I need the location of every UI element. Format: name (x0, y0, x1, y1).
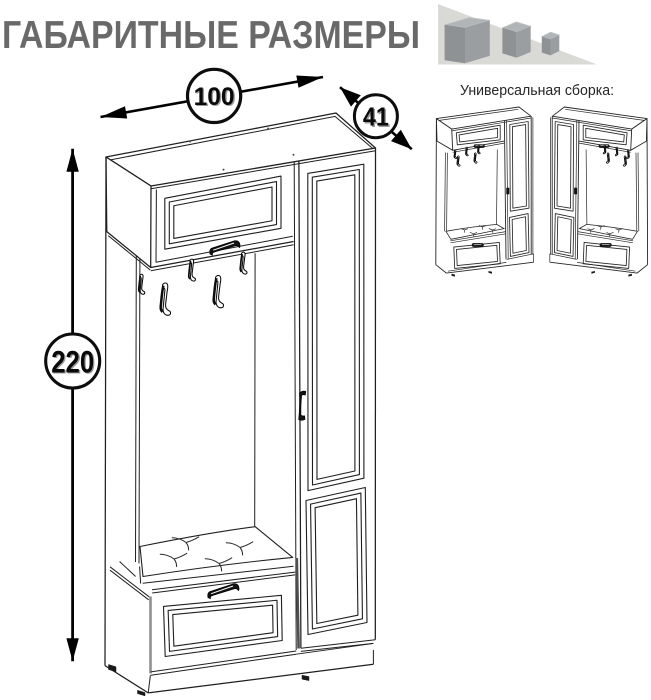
svg-text:41: 41 (363, 102, 389, 132)
svg-text:Универсальная сборка:: Универсальная сборка: (460, 83, 614, 99)
svg-text:220: 220 (51, 343, 94, 379)
svg-text:ГАБАРИТНЫЕ РАЗМЕРЫ: ГАБАРИТНЫЕ РАЗМЕРЫ (2, 14, 420, 57)
svg-text:100: 100 (194, 83, 235, 111)
